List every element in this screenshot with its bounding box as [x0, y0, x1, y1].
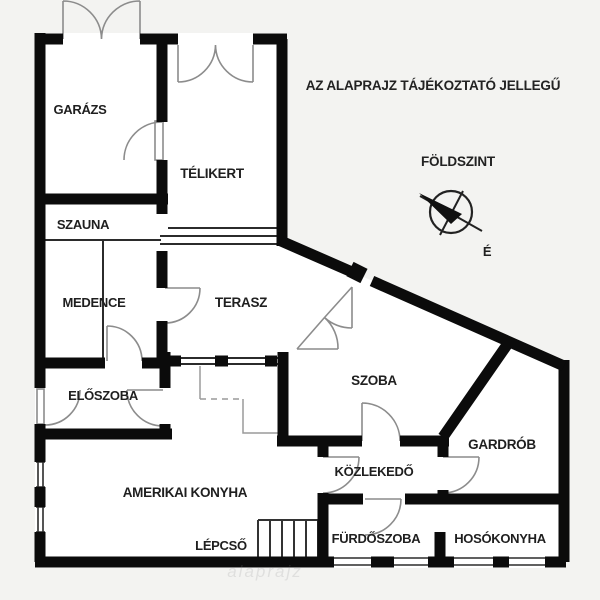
room-label-szoba: SZOBA — [351, 373, 397, 388]
room-label-telikert: TÉLIKERT — [180, 166, 245, 181]
room-label-kozlekedo: KÖZLEKEDŐ — [335, 464, 414, 479]
room-label-gardrob: GARDRÓB — [468, 437, 536, 452]
room-label-amerikai-konyha: AMERIKAI KONYHA — [123, 485, 248, 500]
room-label-eloszoba: ELŐSZOBA — [68, 388, 139, 403]
floorplan-page: É AZ ALAPRAJZ TÁJÉKOZTATÓ JELLEGŰ FÖLDSZ… — [0, 0, 600, 600]
compass-needle — [419, 193, 462, 224]
diagonal-door-post — [350, 269, 364, 276]
compass: É — [419, 191, 492, 259]
room-label-szauna: SZAUNA — [57, 217, 110, 232]
compass-north-label: É — [483, 244, 492, 259]
room-label-garazs: GARÁZS — [53, 102, 107, 117]
floorplan-drawing: É AZ ALAPRAJZ TÁJÉKOZTATÓ JELLEGŰ FÖLDSZ… — [0, 0, 600, 600]
floor-label: FÖLDSZINT — [421, 154, 496, 169]
room-label-lepcso: LÉPCSŐ — [195, 538, 247, 553]
disclaimer-text: AZ ALAPRAJZ TÁJÉKOZTATÓ JELLEGŰ — [306, 78, 561, 93]
room-label-medence: MEDENCE — [63, 295, 127, 310]
room-label-furdoszoba: FÜRDŐSZOBA — [332, 531, 422, 546]
room-label-hosokonyha: HOSÓKONYHA — [454, 531, 547, 546]
watermark-text: alaprajz — [227, 562, 303, 581]
room-label-terasz: TERASZ — [215, 295, 267, 310]
